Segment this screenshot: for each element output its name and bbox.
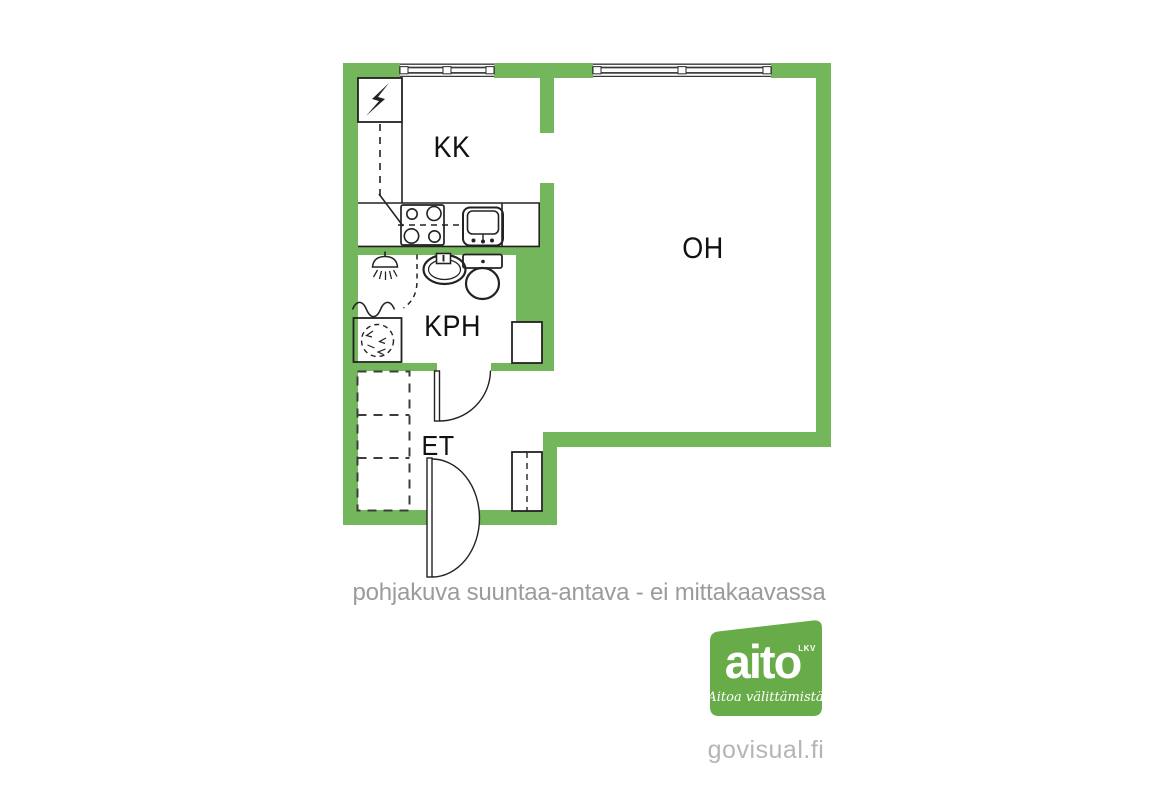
- wall-kph-bottom-left: [343, 363, 437, 371]
- kitchen-counter: [358, 203, 540, 246]
- room-label-et: ET: [407, 432, 468, 460]
- lightning-bolt-icon: [366, 83, 389, 116]
- window-tick: [678, 67, 686, 74]
- kitchen-sink-symbol: [463, 208, 503, 246]
- shower-area-dashed-line: [404, 255, 418, 309]
- wall-et-bottom-left: [343, 510, 427, 525]
- window-tick: [486, 67, 494, 74]
- toilet-symbol: [463, 255, 502, 300]
- aito-lkv-logo: aito LKV Aitoa välittämistä: [700, 619, 831, 719]
- room-label-oh: OH: [667, 234, 739, 264]
- wall-kk-oh-lower: [540, 183, 554, 248]
- wall-kk-oh-upper: [540, 63, 554, 133]
- wardrobe-symbol: [358, 372, 410, 511]
- window-tick: [400, 67, 408, 74]
- window-tick: [763, 67, 771, 74]
- interior-door-swing: [435, 371, 491, 422]
- hall-fixtures: [358, 372, 543, 578]
- window-symbol-2: [593, 63, 771, 78]
- room-label-kk: KK: [419, 133, 486, 163]
- counter-corner-diagonal: [379, 194, 403, 226]
- website-text: govisual.fi: [697, 736, 835, 765]
- wall-left: [343, 63, 358, 525]
- wall-kph-bottom-right: [491, 363, 554, 371]
- wall-et-bottom-right: [479, 510, 557, 525]
- floor-plan-drawing: [0, 0, 1169, 800]
- window-tick: [443, 67, 451, 74]
- floor-plan-page: KK OH KPH ET pohjakuva suuntaa-antava - …: [0, 0, 1169, 800]
- disclaimer-text: pohjakuva suuntaa-antava - ei mittakaava…: [289, 579, 889, 607]
- wall-right: [816, 63, 831, 447]
- shower-curtain-line: [353, 302, 395, 316]
- hall-cabinet: [512, 452, 542, 511]
- wall-oh-bottom: [543, 432, 831, 447]
- logo-lkv-suffix: LKV: [798, 644, 816, 653]
- washing-machine-reservation-symbol: [354, 318, 402, 362]
- entrance-door-swing: [427, 458, 480, 577]
- duct-shaft: [512, 322, 542, 363]
- washbasin-symbol: [424, 254, 466, 285]
- room-label-kph: KPH: [410, 312, 496, 342]
- logo-tagline: Aitoa välittämistä: [700, 690, 831, 705]
- window-symbol-1: [400, 63, 494, 78]
- window-tick: [593, 67, 601, 74]
- shower-symbol: [373, 252, 398, 281]
